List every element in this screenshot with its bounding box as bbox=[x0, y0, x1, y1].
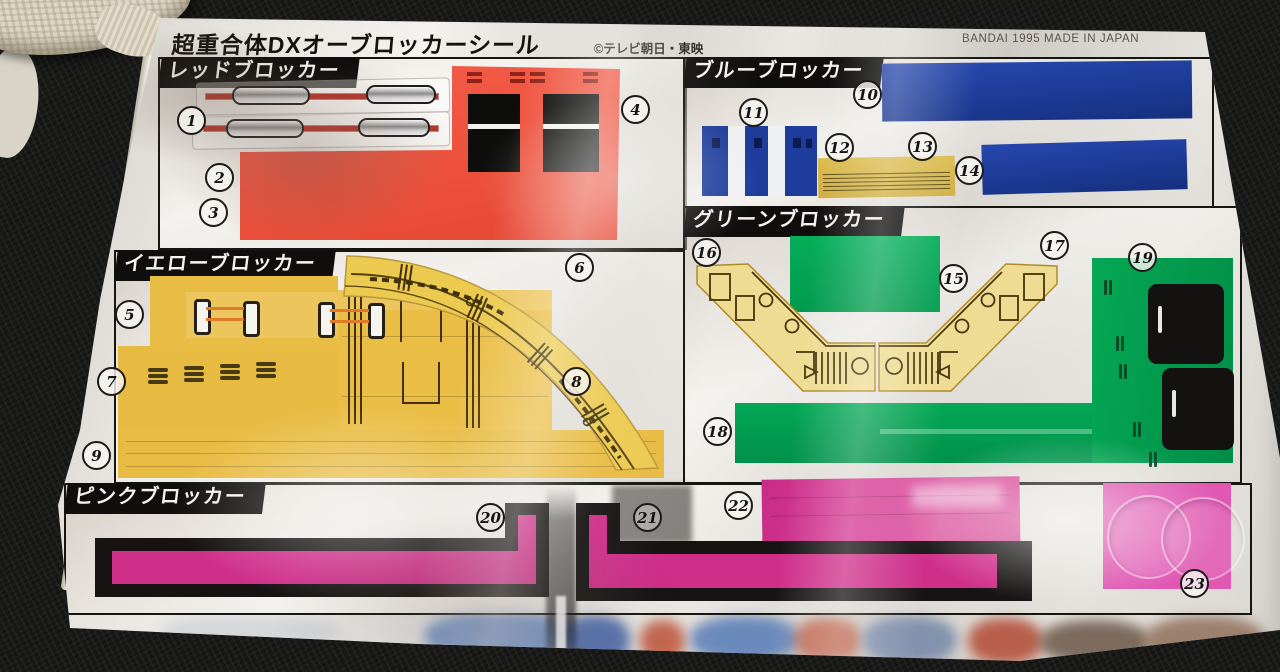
grille-stripe bbox=[768, 126, 785, 196]
sticker-number-badge-2: 2 bbox=[205, 163, 234, 192]
sticker-number-badge-1: 1 bbox=[177, 106, 206, 135]
sticker-blue-panel-large bbox=[882, 60, 1193, 121]
sticker-number-badge-12: 12 bbox=[825, 133, 854, 162]
window-stripe bbox=[543, 124, 599, 129]
sticker-blue-panel-small bbox=[981, 139, 1187, 195]
truck-dash bbox=[467, 72, 482, 76]
rung-bar bbox=[330, 309, 369, 312]
grille-stripe bbox=[728, 126, 745, 196]
disc bbox=[1161, 497, 1245, 581]
truck-dash bbox=[530, 79, 545, 83]
sticker-number-badge-10: 10 bbox=[853, 80, 882, 109]
sticker-number-badge-21: 21 bbox=[633, 503, 662, 532]
rung-bar bbox=[330, 320, 369, 323]
reflection-blob bbox=[968, 618, 1043, 664]
sticker-number-badge-19: 19 bbox=[1128, 243, 1157, 272]
truck-dash bbox=[510, 72, 525, 76]
truck-dash bbox=[467, 79, 482, 83]
sticker-number-badge-20: 20 bbox=[476, 503, 505, 532]
grille-tick bbox=[712, 138, 720, 148]
sticker-number-badge-18: 18 bbox=[703, 417, 732, 446]
truck-dash bbox=[583, 72, 598, 76]
circuit-bracket bbox=[402, 362, 440, 404]
rung-bar bbox=[206, 318, 244, 321]
sticker-number-badge-3: 3 bbox=[199, 198, 228, 227]
reflection-blob bbox=[862, 616, 957, 664]
truck-window bbox=[543, 94, 599, 172]
reflection-blob bbox=[160, 614, 340, 648]
sticker-number-badge-8: 8 bbox=[562, 367, 591, 396]
sticker-number-badge-16: 16 bbox=[692, 238, 721, 267]
sticker-number-badge-23: 23 bbox=[1180, 569, 1209, 598]
sticker-number-badge-7: 7 bbox=[97, 367, 126, 396]
rung-bar bbox=[206, 307, 244, 310]
paper-edge-lower bbox=[0, 45, 46, 162]
section-pink-label: ピンクブロッカー bbox=[64, 483, 266, 514]
truck-dash bbox=[530, 72, 545, 76]
sticker-number-badge-17: 17 bbox=[1040, 231, 1069, 260]
sticker-number-badge-5: 5 bbox=[115, 300, 144, 329]
reflection-blob bbox=[1040, 620, 1150, 664]
sticker-number-badge-11: 11 bbox=[739, 98, 768, 127]
truck-window bbox=[468, 94, 520, 172]
sticker-yellow-mid-left bbox=[118, 346, 340, 432]
reflection-blob bbox=[1145, 616, 1265, 664]
strip-highlight bbox=[880, 429, 1095, 434]
rail-capsule bbox=[232, 86, 310, 105]
sticker-number-badge-15: 15 bbox=[939, 264, 968, 293]
truck-dash bbox=[583, 79, 598, 83]
sticker-green-strip bbox=[735, 403, 1105, 463]
window-stripe bbox=[468, 124, 520, 129]
reflection-blob bbox=[640, 620, 685, 662]
grille-tick bbox=[754, 138, 762, 148]
sticker-sheet: 超重合体DXオーブロッカーシール ©テレビ朝日・東映 BANDAI 1995 M… bbox=[0, 0, 1280, 672]
sticker-green-panel bbox=[790, 236, 940, 312]
glare bbox=[912, 484, 1002, 507]
rail-capsule bbox=[366, 85, 436, 104]
panel-tick bbox=[1172, 390, 1176, 417]
rail-capsule bbox=[358, 118, 430, 137]
sheet-title: 超重合体DXオーブロッカーシール bbox=[171, 26, 542, 60]
sticker-number-badge-13: 13 bbox=[908, 132, 937, 161]
grille-tick bbox=[806, 139, 812, 148]
sticker-number-badge-4: 4 bbox=[621, 95, 650, 124]
sticker-green-side bbox=[1092, 258, 1233, 463]
section-blue-label: ブルーブロッカー bbox=[683, 57, 884, 88]
sticker-number-badge-14: 14 bbox=[955, 156, 984, 185]
panel-tick bbox=[1158, 306, 1162, 333]
copyright-text: ©テレビ朝日・東映 bbox=[594, 38, 703, 57]
reflection-blob bbox=[795, 618, 860, 662]
sticker-gold-strip bbox=[818, 156, 956, 198]
section-green-label: グリーンブロッカー bbox=[683, 206, 905, 237]
reflection-blob bbox=[690, 616, 800, 662]
rung-end bbox=[194, 299, 211, 335]
grille-tick bbox=[793, 138, 801, 148]
sticker-number-badge-9: 9 bbox=[82, 441, 111, 470]
reflection-streak-white bbox=[556, 596, 566, 666]
sticker-number-badge-6: 6 bbox=[565, 253, 594, 282]
sticker-pink-bar bbox=[762, 476, 1021, 553]
circuit-bracket bbox=[400, 298, 442, 342]
truck-dash bbox=[510, 79, 525, 83]
sticker-yellow-bottom-strip bbox=[118, 430, 664, 478]
manufacturer-mark: BANDAI 1995 MADE IN JAPAN bbox=[962, 33, 1139, 45]
rail-capsule bbox=[226, 119, 304, 138]
sticker-blue-grille bbox=[702, 126, 817, 196]
photo-of-sticker-sheet: 超重合体DXオーブロッカーシール ©テレビ朝日・東映 BANDAI 1995 M… bbox=[0, 0, 1280, 672]
sticker-pink-discs bbox=[1103, 483, 1231, 589]
rung-end bbox=[243, 301, 260, 337]
sticker-number-badge-22: 22 bbox=[724, 491, 753, 520]
rung-end bbox=[368, 303, 385, 339]
